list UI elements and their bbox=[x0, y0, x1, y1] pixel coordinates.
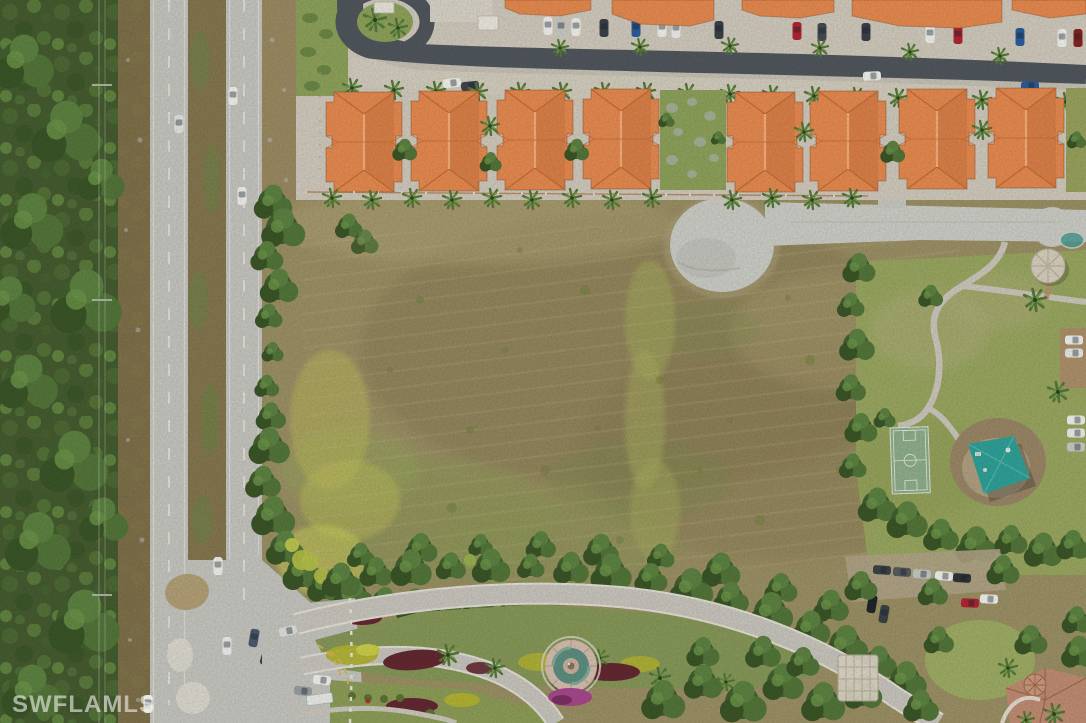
mls-watermark: SWFLAMLS bbox=[12, 691, 156, 718]
photo-grain bbox=[0, 0, 1086, 723]
aerial-photo: SWFLAMLS bbox=[0, 0, 1086, 723]
